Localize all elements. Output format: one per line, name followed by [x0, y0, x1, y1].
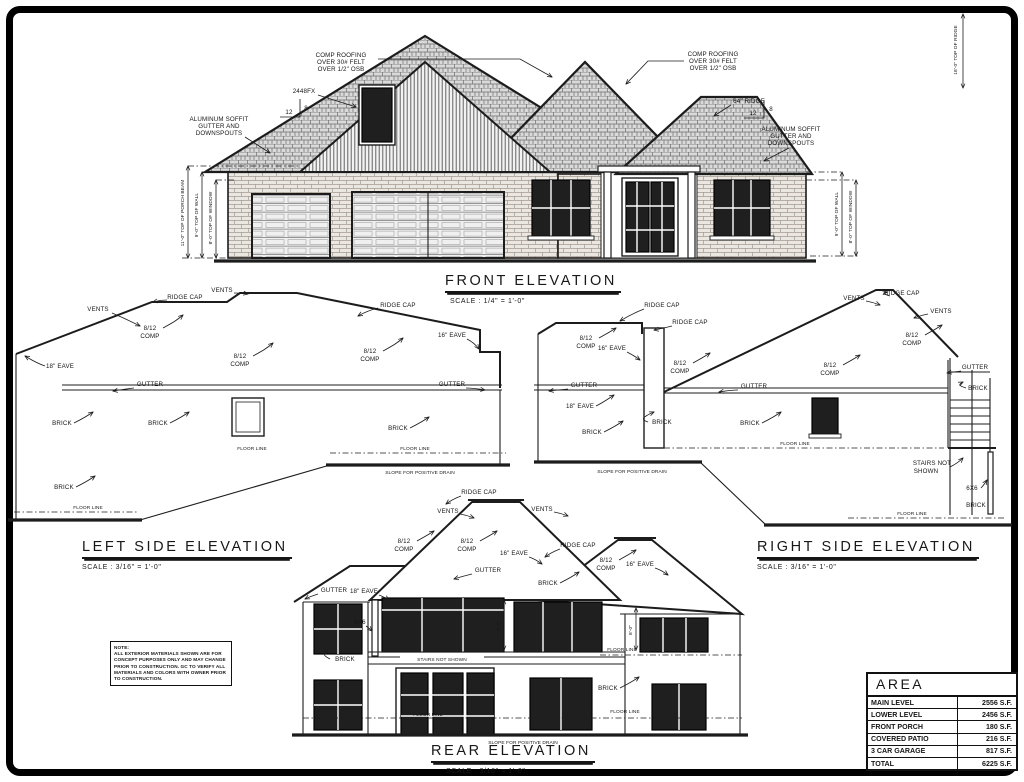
right-fascia-main [664, 388, 948, 393]
front-elevation-scale: SCALE : 1/4" = 1'-0" [438, 298, 628, 305]
label-window-code: 2448FX [293, 88, 316, 95]
label-slope-rise: 12 [285, 109, 293, 116]
label-comp: COMP [360, 356, 379, 363]
label-shown: SHOWN [914, 468, 938, 475]
rear-elevation-title: REAR ELEVATION [431, 743, 595, 763]
porch-post-left [604, 172, 611, 258]
front-window-left-sill [528, 236, 594, 240]
label-pitch: 8/12 [580, 335, 593, 342]
area-table: AREA MAIN LEVEL 2556 S.F. LOWER LEVEL 24… [866, 672, 1018, 771]
right-window-sill [809, 434, 841, 438]
table-row: LOWER LEVEL 2456 S.F. [868, 708, 1016, 720]
leader [960, 382, 966, 388]
leader [719, 390, 738, 392]
leader [366, 626, 372, 631]
label-floor-line: FLOOR LINE [73, 505, 103, 511]
label-slope-run: 8 [769, 106, 773, 113]
label-brick: BRICK [388, 425, 408, 432]
label-slope-run: 8 [304, 105, 308, 112]
label-brick: BRICK [652, 419, 672, 426]
label-post-6x6: 6X6 [354, 619, 366, 626]
note-line: CONCEPT PURPOSES ONLY AND MAY CHANGE [114, 657, 228, 663]
materials-note: NOTE: ALL EXTERIOR MATERIALS SHOWN ARE F… [110, 641, 232, 686]
rear-patio-post [372, 600, 378, 656]
label-aluminum-soffit: ALUMINUM SOFFIT [190, 116, 249, 123]
area-table-title: AREA [868, 674, 1016, 696]
right-elevation-title: RIGHT SIDE ELEVATION [757, 539, 979, 559]
rear-far-right-window [640, 618, 708, 652]
label-vents: VENTS [843, 295, 864, 302]
label-pitch: 8/12 [824, 362, 837, 369]
porch-post-right [688, 172, 695, 258]
label-floor-line: FLOOR LINE [897, 511, 927, 517]
leader [620, 677, 639, 688]
front-window-right-sill [710, 236, 774, 240]
front-title-block: FRONT ELEVATION SCALE : 1/4" = 1'-0" [438, 272, 628, 305]
label-vents: VENTS [531, 506, 552, 513]
dim-top-window-left: 8'-0" TOP OF WINDOW [208, 191, 214, 244]
leader [693, 353, 710, 363]
leader [554, 512, 568, 516]
label-eave-18: 18" EAVE [566, 403, 594, 410]
label-comp-roofing: COMP ROOFING [316, 52, 367, 59]
table-row: COVERED PATIO 216 S.F. [868, 733, 1016, 745]
porch-beam [598, 166, 700, 172]
label-slope-drain: SLOPE FOR POSITIVE DRAIN [385, 470, 455, 476]
right-elevation-scale: SCALE : 3/16" = 1'-0" [757, 564, 979, 571]
leader [596, 395, 614, 406]
leader [599, 328, 616, 338]
label-brick: BRICK [582, 429, 602, 436]
label-pitch: 8/12 [234, 353, 247, 360]
leader [358, 308, 378, 316]
label-comp: COMP [394, 546, 413, 553]
label-gutter: GUTTER [962, 364, 989, 371]
label-pitch: 8/12 [674, 360, 687, 367]
label-floor-line: FLOOR LINE [237, 446, 267, 452]
label-post-6x6: 6X6 [966, 485, 978, 492]
label-eave-16: 16" EAVE [626, 561, 654, 568]
rear-big-window [382, 598, 504, 652]
table-row: TOTAL 6225 S.F. [868, 757, 1016, 769]
area-row-value: 216 S.F. [957, 734, 1016, 745]
right-fascia-left [534, 385, 662, 390]
leader [410, 417, 429, 428]
label-comp: COMP [596, 565, 615, 572]
label-ridge-cap: RIDGE CAP [380, 302, 415, 309]
label-aluminum-soffit: DOWNSPOUTS [768, 140, 815, 147]
label-comp-roofing: OVER 1/2" OSB [318, 66, 365, 73]
dim-top-window-right: 8'-0" TOP OF WINDOW [848, 190, 854, 243]
rear-elevation: 9'-0" 8'-0" RIDGE CAP VENTS VENTS 8/12 C… [292, 489, 748, 746]
dim-top-wall-left: 9'-0" TOP OF WALL [194, 193, 200, 238]
right-chimney [644, 328, 664, 448]
dim-rear-8: 8'-0" [628, 625, 634, 635]
label-eave-18: 18" EAVE [46, 363, 74, 370]
label-pitch: 8/12 [906, 332, 919, 339]
label-vents: VENTS [211, 287, 232, 294]
leader [866, 301, 880, 305]
label-aluminum-soffit: GUTTER AND [198, 123, 240, 130]
label-pitch: 8/12 [364, 348, 377, 355]
leader [74, 412, 93, 423]
leader [620, 309, 644, 321]
right-side-elevation: RIDGE CAP RIDGE CAP 8/12 COMP 16" EAVE 8… [534, 290, 1012, 525]
label-pitch: 8/12 [398, 538, 411, 545]
label-brick: BRICK [148, 420, 168, 427]
leader [762, 412, 781, 423]
leader [170, 412, 189, 423]
leader [163, 315, 183, 328]
area-row-value: 2456 S.F. [957, 709, 1016, 720]
label-ridge-cap: RIDGE CAP [167, 294, 202, 301]
table-row: 3 CAR GARAGE 817 S.F. [868, 745, 1016, 757]
label-comp-roofing: OVER 30# FELT [317, 59, 365, 66]
label-comp-roofing: OVER 1/2" OSB [690, 65, 737, 72]
label-floor-line: FLOOR LINE [610, 709, 640, 715]
label-vents: VENTS [437, 508, 458, 515]
area-row-label: LOWER LEVEL [868, 709, 957, 720]
front-elevation: 11'-0" TOP OF PORCH BEAM 9'-0" TOP OF WA… [180, 14, 963, 261]
left-title-block: LEFT SIDE ELEVATION SCALE : 3/16" = 1'-0… [82, 538, 292, 571]
rear-upper-right-window [514, 602, 602, 652]
label-ridge: 64" RIDGE [733, 98, 765, 105]
rear-door [433, 673, 463, 735]
area-row-value: 817 S.F. [957, 746, 1016, 757]
right-post-6x6 [988, 452, 993, 514]
table-row: FRONT PORCH 180 S.F. [868, 720, 1016, 732]
front-elevation-title: FRONT ELEVATION [445, 273, 621, 293]
note-line: TO CONSTRUCTION. [114, 676, 228, 682]
label-vents: VENTS [930, 308, 951, 315]
label-comp: COMP [670, 368, 689, 375]
area-row-label: 3 CAR GARAGE [868, 746, 957, 757]
label-brick: BRICK [538, 580, 558, 587]
leader [383, 338, 403, 351]
area-row-label: TOTAL [868, 758, 957, 769]
gable-window [362, 88, 392, 142]
label-ridge-cap: RIDGE CAP [672, 319, 707, 326]
area-row-value: 6225 S.F. [957, 758, 1016, 769]
label-comp: COMP [140, 333, 159, 340]
label-stairs-not: STAIRS NOT [913, 460, 951, 467]
label-comp: COMP [457, 546, 476, 553]
leader [627, 352, 640, 360]
leader [981, 480, 987, 488]
label-ridge-cap: RIDGE CAP [461, 489, 496, 496]
label-floor-line: FLOOR LINE [780, 441, 810, 447]
rear-title-block: REAR ELEVATION SCALE : 3/16" = 1'-0" [428, 742, 598, 775]
label-slope-drain: SLOPE FOR POSITIVE DRAIN [597, 469, 667, 475]
area-row-value: 180 S.F. [957, 721, 1016, 732]
garage-door-single [252, 194, 330, 258]
stairs-treads [950, 372, 990, 440]
label-gutter: GUTTER [571, 382, 598, 389]
rear-elevation-linework: 9'-0" 8'-0" [292, 500, 748, 735]
rear-door-sidelite-right [467, 673, 494, 735]
leader [25, 356, 45, 366]
label-gutter: GUTTER [439, 381, 466, 388]
label-aluminum-soffit: GUTTER AND [770, 133, 812, 140]
rear-elevation-scale: SCALE : 3/16" = 1'-0" [428, 768, 598, 775]
left-window-frame [232, 398, 264, 436]
area-row-label: COVERED PATIO [868, 734, 957, 745]
label-pitch: 8/12 [461, 538, 474, 545]
label-comp: COMP [576, 343, 595, 350]
label-comp: COMP [820, 370, 839, 377]
leader [604, 421, 623, 432]
label-brick: BRICK [966, 502, 986, 509]
label-brick: BRICK [52, 420, 72, 427]
left-fascia-lines [62, 385, 502, 390]
label-aluminum-soffit: DOWNSPOUTS [196, 130, 243, 137]
leader [950, 458, 963, 467]
note-line: PRIOR TO CONSTRUCTION. GC TO VERIFY ALL [114, 664, 228, 670]
label-vents: VENTS [87, 306, 108, 313]
right-title-block: RIGHT SIDE ELEVATION SCALE : 3/16" = 1'-… [757, 538, 979, 571]
label-floor-line: FLOOR LINE [413, 712, 443, 718]
label-comp-roofing: OVER 30# FELT [689, 58, 737, 65]
label-gutter: GUTTER [475, 567, 502, 574]
table-row: MAIN LEVEL 2556 S.F. [868, 696, 1016, 708]
label-brick: BRICK [740, 420, 760, 427]
left-side-elevation: VENTS RIDGE CAP VENTS 8/12 COMP 8/12 COM… [8, 287, 510, 520]
left-wall-outline [16, 354, 500, 520]
label-eave-16: 16" EAVE [500, 550, 528, 557]
label-aluminum-soffit: ALUMINUM SOFFIT [762, 126, 821, 133]
leader [843, 355, 860, 365]
label-comp: COMP [902, 340, 921, 347]
leader [253, 343, 273, 356]
label-pitch: 8/12 [600, 557, 613, 564]
leader [76, 476, 95, 487]
label-gutter: GUTTER [321, 587, 348, 594]
area-row-label: FRONT PORCH [868, 721, 957, 732]
label-brick: BRICK [335, 656, 355, 663]
label-eave-18: 18" EAVE [350, 588, 378, 595]
label-floor-line: FLOOR LINE [400, 446, 430, 452]
leader [446, 496, 461, 504]
label-pitch: 8/12 [144, 325, 157, 332]
leader [626, 61, 684, 84]
dim-top-wall-right: 9'-0" TOP OF WALL [834, 192, 840, 237]
label-eave-16: 16" EAVE [598, 345, 626, 352]
left-elevation-title: LEFT SIDE ELEVATION [82, 539, 292, 559]
label-eave-16: 16" EAVE [438, 332, 466, 339]
label-brick: BRICK [598, 685, 618, 692]
drawing-sheet: 11'-0" TOP OF PORCH BEAM 9'-0" TOP OF WA… [0, 0, 1024, 782]
label-floor-line: FLOOR LINE [607, 647, 637, 653]
label-brick: BRICK [54, 484, 74, 491]
right-ground-slope [700, 462, 766, 525]
label-comp-roofing: COMP ROOFING [688, 51, 739, 58]
area-row-value: 2556 S.F. [957, 697, 1016, 708]
leader [112, 313, 140, 326]
label-ridge-cap: RIDGE CAP [560, 542, 595, 549]
right-elevation-linework [534, 290, 1012, 525]
label-gutter: GUTTER [137, 381, 164, 388]
label-slope-rise: 12 [749, 110, 757, 117]
area-row-label: MAIN LEVEL [868, 697, 957, 708]
dim-rear-9: 9'-0" [496, 621, 502, 631]
right-patio-roof [538, 323, 642, 334]
dim-top-ridge: 18'-0" TOP OF RIDGE [953, 25, 959, 75]
leader [467, 339, 479, 349]
label-gutter: GUTTER [741, 383, 768, 390]
left-elevation-linework [8, 293, 510, 520]
label-brick: BRICK [968, 385, 988, 392]
rear-door-sidelite-left [401, 673, 428, 735]
right-annotations: RIDGE CAP RIDGE CAP 8/12 COMP 16" EAVE 8… [549, 290, 989, 517]
label-comp: COMP [230, 361, 249, 368]
dim-porch-beam: 11'-0" TOP OF PORCH BEAM [180, 180, 186, 247]
right-window [812, 398, 838, 434]
leader [417, 531, 434, 541]
label-ridge-cap: RIDGE CAP [644, 302, 679, 309]
left-elevation-scale: SCALE : 3/16" = 1'-0" [82, 564, 292, 571]
label-stairs-not-shown: STAIRS NOT SHOWN [417, 657, 467, 663]
